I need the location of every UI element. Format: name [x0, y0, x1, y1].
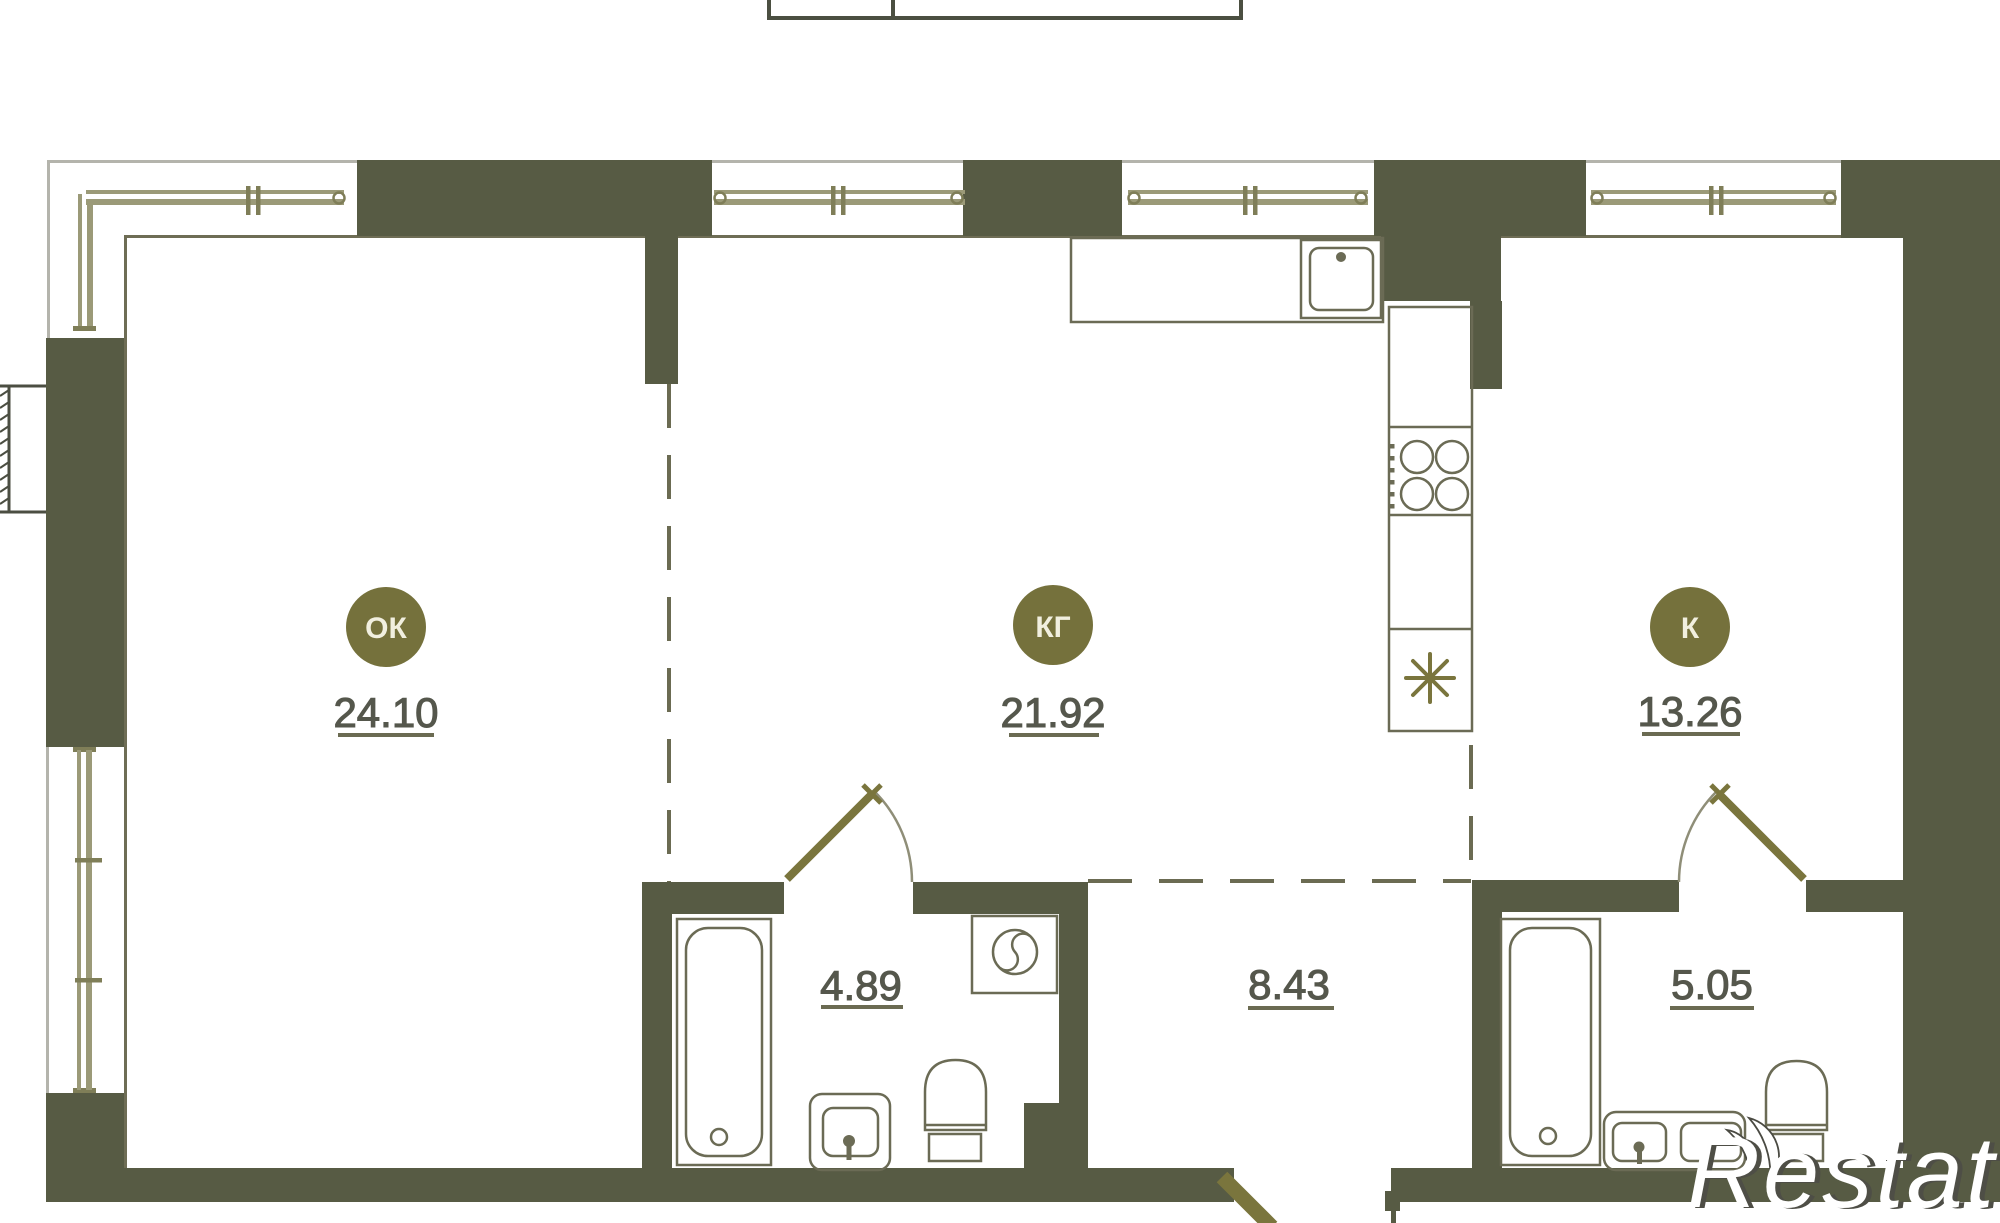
svg-text:ОК: ОК	[365, 612, 407, 645]
svg-text:Restate: Restate	[1687, 1117, 2000, 1223]
svg-text:4.89: 4.89	[820, 962, 902, 1009]
svg-text:13.26: 13.26	[1637, 688, 1742, 735]
svg-text:21.92: 21.92	[1000, 689, 1105, 736]
svg-text:К: К	[1681, 612, 1700, 645]
svg-text:5.05: 5.05	[1671, 961, 1753, 1008]
svg-text:КГ: КГ	[1035, 611, 1070, 644]
svg-text:24.10: 24.10	[333, 689, 438, 736]
svg-text:8.43: 8.43	[1248, 961, 1330, 1008]
